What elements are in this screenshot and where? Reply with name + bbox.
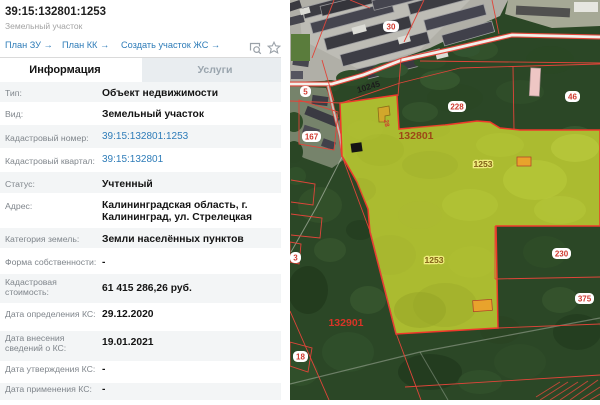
svg-text:375: 375 bbox=[578, 295, 592, 304]
svg-text:230: 230 bbox=[555, 250, 569, 259]
svg-text:3: 3 bbox=[293, 254, 298, 263]
svg-text:30: 30 bbox=[387, 23, 396, 32]
svg-text:1253: 1253 bbox=[474, 159, 493, 169]
svg-text:132801: 132801 bbox=[398, 130, 433, 142]
svg-text:1253: 1253 bbox=[425, 255, 444, 265]
svg-text:46: 46 bbox=[568, 93, 577, 102]
svg-text:5: 5 bbox=[303, 88, 308, 97]
svg-text:132901: 132901 bbox=[328, 317, 363, 329]
svg-text:18: 18 bbox=[296, 353, 305, 362]
svg-text:167: 167 bbox=[305, 133, 319, 142]
svg-text:228: 228 bbox=[450, 103, 464, 112]
